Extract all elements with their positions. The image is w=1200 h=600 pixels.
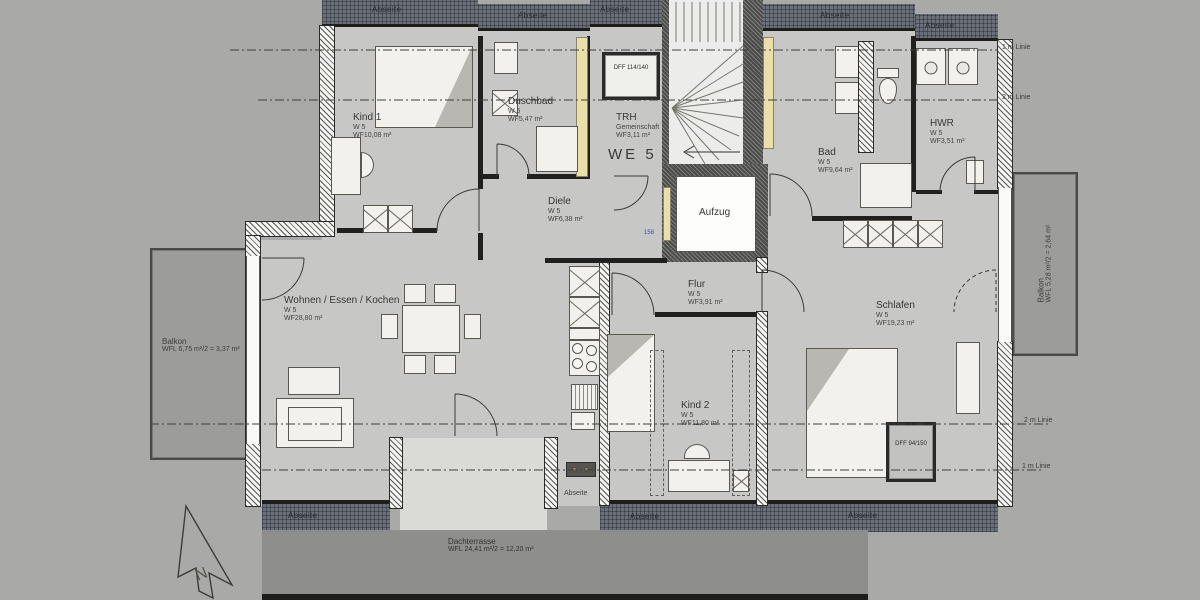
room-label-trh: TRH Gemeinschaft WF3,11 m² (616, 112, 659, 140)
floor-plan: DFF 114/140 (0, 0, 1200, 600)
elevator-door-dimension: 158 (644, 230, 654, 236)
abseite-label: Abseite (848, 511, 877, 520)
abseite-label: Abseite (630, 512, 659, 521)
abseite-label: Abseite (820, 11, 849, 20)
abseite-label: Abseite (925, 21, 954, 30)
room-label-kind2: Kind 2 W 5 WF11,80 m² (681, 400, 719, 428)
height-line-label: 2 m Linie (1024, 417, 1052, 424)
room-label-wohnen: Wohnen / Essen / Kochen W 5 WF28,80 m² (284, 295, 399, 323)
abseite-label: Abseite (564, 490, 587, 497)
unit-label: WE 5 (608, 146, 657, 163)
abseite-label: Abseite (288, 511, 317, 520)
abseite-label: Abseite (372, 5, 401, 14)
room-label-hwr: HWR W 5 WF3,51 m² (930, 118, 965, 146)
room-label-duschbad: Duschbad W 5 WF5,47 m² (508, 96, 553, 124)
balcony-right-label: Balkon WFL 5,28 m²/2 = 2,64 m² (1012, 172, 1078, 356)
roof-terrace-label: Dachterrasse WFL 24,41 m²/2 = 12,20 m² (448, 537, 534, 554)
room-label-diele: Diele W 5 WF6,38 m² (548, 196, 583, 224)
height-line-label: 1 m Linie (1002, 44, 1030, 51)
room-label-aufzug: Aufzug (699, 207, 730, 218)
height-line-label: 1 m Linie (1022, 463, 1050, 470)
room-label-kind1: Kind 1 W 5 WF10,08 m² (353, 112, 392, 140)
room-label-schlafen: Schlafen W 5 WF19,23 m² (876, 300, 915, 328)
room-label-flur: Flur W 5 WF3,91 m² (688, 279, 723, 307)
abseite-label: Abseite (518, 11, 547, 20)
balcony-left-label: Balkon WFL 6,75 m²/2 = 3,37 m² (162, 337, 240, 354)
height-line-label: 2 m Linie (1002, 94, 1030, 101)
abseite-label: Abseite (600, 5, 629, 14)
room-label-bad: Bad W 5 WF9,64 m² (818, 147, 853, 175)
